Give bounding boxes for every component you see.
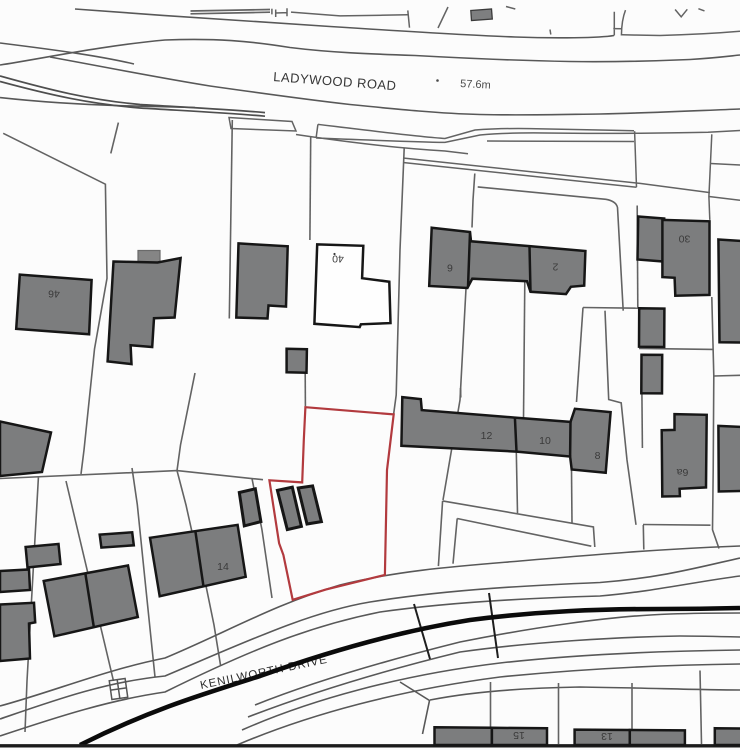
svg-text:15: 15: [513, 729, 525, 741]
svg-text:10: 10: [539, 435, 551, 447]
svg-text:6: 6: [447, 262, 453, 274]
svg-text:2: 2: [552, 261, 558, 273]
svg-text:40: 40: [332, 253, 344, 265]
svg-text:14: 14: [217, 561, 229, 573]
svg-text:8: 8: [595, 450, 601, 462]
svg-text:13: 13: [601, 730, 613, 742]
svg-text:46: 46: [48, 288, 60, 300]
svg-text:30: 30: [679, 232, 691, 244]
svg-text:12: 12: [481, 430, 493, 442]
svg-text:6a: 6a: [677, 466, 689, 478]
svg-text:57.6m: 57.6m: [460, 78, 491, 92]
